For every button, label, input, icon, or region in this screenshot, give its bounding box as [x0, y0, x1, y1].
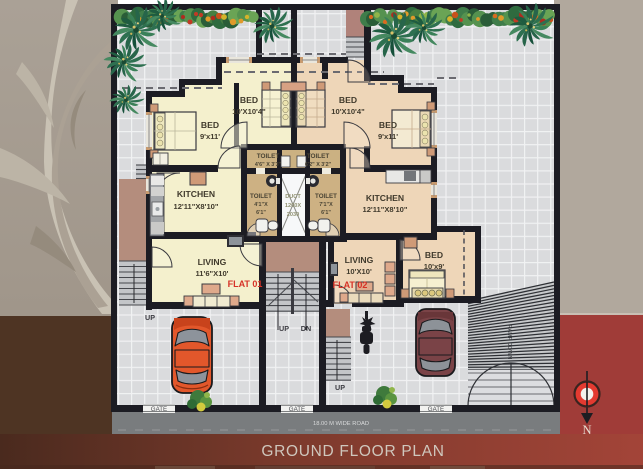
svg-text:GATE: GATE [151, 406, 167, 413]
svg-text:1200X: 1200X [285, 203, 301, 209]
svg-text:6'2" X 3'2": 6'2" X 3'2" [305, 162, 332, 168]
svg-text:TOILET: TOILET [257, 153, 280, 160]
svg-text:UP: UP [279, 324, 289, 333]
svg-text:TOILET: TOILET [307, 153, 330, 160]
svg-text:11'6"X10': 11'6"X10' [196, 269, 229, 278]
svg-text:18.00 M WIDE ROAD: 18.00 M WIDE ROAD [313, 421, 369, 427]
svg-text:BED: BED [379, 120, 397, 130]
svg-text:DUCT: DUCT [285, 194, 301, 200]
svg-text:FLAT 02: FLAT 02 [333, 280, 368, 290]
svg-text:RAMP DOWN: RAMP DOWN [506, 325, 512, 360]
svg-text:DN: DN [301, 324, 311, 333]
svg-text:2030: 2030 [287, 212, 299, 218]
svg-text:N: N [582, 423, 591, 437]
svg-text:9'x11': 9'x11' [200, 132, 220, 141]
svg-text:TOILET: TOILET [315, 193, 337, 200]
svg-text:6'1": 6'1" [256, 210, 266, 216]
svg-text:10'x9': 10'x9' [424, 262, 445, 271]
svg-text:GROUND FLOOR PLAN: GROUND FLOOR PLAN [261, 443, 444, 460]
svg-text:12'11"X8'10": 12'11"X8'10" [362, 205, 407, 214]
svg-text:4'6" X 3'3": 4'6" X 3'3" [255, 162, 282, 168]
svg-text:7'1"X: 7'1"X [319, 202, 333, 208]
svg-text:LIVING: LIVING [345, 255, 374, 265]
svg-text:6'1": 6'1" [321, 210, 331, 216]
svg-text:12'11"X8'10": 12'11"X8'10" [173, 202, 218, 211]
svg-text:GATE: GATE [428, 406, 444, 413]
svg-text:10'X10': 10'X10' [346, 267, 372, 276]
svg-text:9'x11': 9'x11' [378, 132, 398, 141]
svg-text:FLAT 01: FLAT 01 [228, 279, 263, 289]
svg-text:TOILET: TOILET [250, 193, 272, 200]
svg-text:UP: UP [335, 383, 345, 392]
svg-text:4'1"X: 4'1"X [254, 202, 268, 208]
svg-text:BED: BED [201, 120, 219, 130]
svg-text:KITCHEN: KITCHEN [366, 193, 404, 203]
svg-text:UP: UP [145, 313, 155, 322]
svg-text:10'X10'4": 10'X10'4" [232, 107, 266, 116]
svg-text:BED: BED [240, 95, 258, 105]
svg-text:10'X10'4": 10'X10'4" [331, 107, 365, 116]
svg-text:GATE: GATE [289, 406, 305, 413]
svg-text:LIVING: LIVING [198, 257, 227, 267]
svg-text:BED: BED [339, 95, 357, 105]
svg-text:BED: BED [425, 250, 443, 260]
svg-text:KITCHEN: KITCHEN [177, 189, 215, 199]
